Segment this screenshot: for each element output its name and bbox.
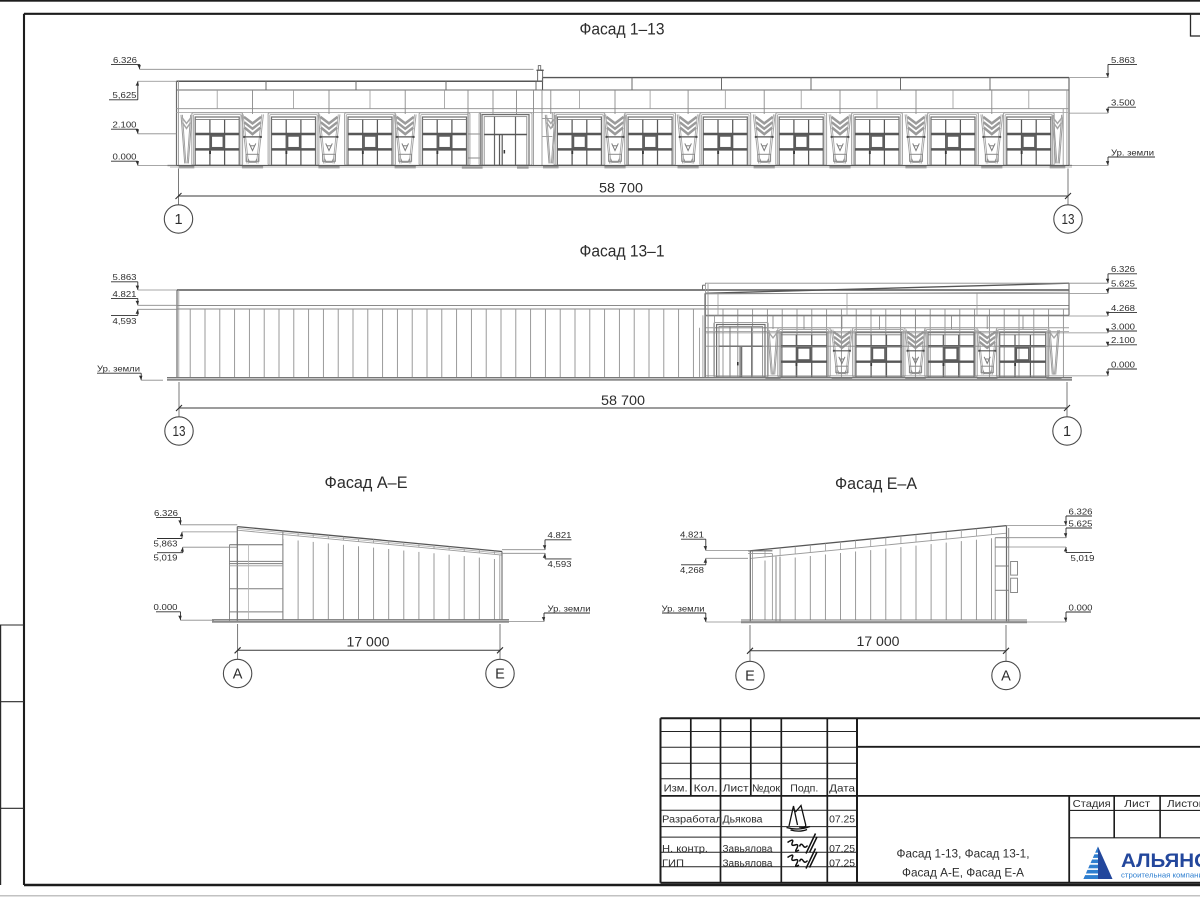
svg-text:Разработал: Разработал	[662, 814, 722, 825]
svg-text:13: 13	[1062, 212, 1075, 228]
svg-text:13: 13	[173, 424, 186, 440]
svg-text:2.100: 2.100	[1111, 335, 1135, 345]
svg-text:Лист: Лист	[1124, 799, 1150, 810]
svg-text:Фасад А–Е: Фасад А–Е	[325, 473, 408, 492]
svg-text:4.821: 4.821	[113, 289, 137, 299]
svg-text:58 700: 58 700	[599, 181, 643, 196]
svg-text:4,593: 4,593	[548, 559, 572, 569]
svg-text:5,863: 5,863	[154, 538, 178, 548]
svg-text:0.000: 0.000	[113, 152, 137, 162]
svg-text:Изм.: Изм.	[664, 784, 688, 795]
svg-text:07.25: 07.25	[829, 858, 855, 869]
svg-text:Фасад Е–А: Фасад Е–А	[835, 474, 918, 493]
svg-text:4.821: 4.821	[548, 530, 572, 540]
svg-text:6.326: 6.326	[113, 55, 137, 65]
svg-text:Фасад 1–13: Фасад 1–13	[580, 20, 665, 39]
svg-text:07.25: 07.25	[829, 844, 855, 855]
svg-text:Завьялова: Завьялова	[723, 858, 774, 869]
svg-text:0.000: 0.000	[1111, 359, 1135, 369]
svg-text:строительная компания: строительная компания	[1121, 871, 1200, 880]
svg-text:5.863: 5.863	[113, 272, 137, 282]
svg-text:Фасад А-Е, Фасад Е-А: Фасад А-Е, Фасад Е-А	[902, 866, 1025, 880]
svg-text:Подп.: Подп.	[790, 784, 818, 795]
svg-text:№док: №док	[752, 784, 780, 795]
svg-text:Н. контр.: Н. контр.	[662, 844, 708, 855]
svg-text:58 700: 58 700	[601, 393, 645, 408]
svg-text:4,268: 4,268	[680, 565, 704, 575]
svg-text:5.863: 5.863	[1111, 55, 1135, 65]
svg-text:0.000: 0.000	[154, 602, 178, 612]
svg-text:5.625: 5.625	[1111, 279, 1135, 289]
svg-text:А: А	[1001, 669, 1011, 685]
svg-text:Ур. земли: Ур. земли	[1111, 147, 1154, 157]
svg-text:1: 1	[1063, 424, 1071, 440]
svg-text:Ур. земли: Ур. земли	[548, 603, 591, 613]
svg-text:1: 1	[174, 212, 182, 228]
svg-text:АЛЬЯНС: АЛЬЯНС	[1121, 851, 1200, 872]
svg-text:Дьякова: Дьякова	[723, 814, 764, 825]
svg-text:Фасад 13–1: Фасад 13–1	[580, 242, 665, 261]
svg-text:5,019: 5,019	[1071, 553, 1095, 563]
svg-text:17 000: 17 000	[857, 634, 900, 649]
svg-text:07.25: 07.25	[829, 814, 855, 825]
svg-text:Е: Е	[495, 667, 505, 683]
svg-text:3.000: 3.000	[1111, 321, 1135, 331]
svg-text:6.326: 6.326	[154, 508, 178, 518]
svg-text:5.625: 5.625	[1069, 518, 1093, 528]
svg-text:Е: Е	[745, 669, 755, 685]
svg-text:Завьялова: Завьялова	[723, 844, 774, 855]
svg-text:Фасад 1-13, Фасад 13-1,: Фасад 1-13, Фасад 13-1,	[897, 846, 1030, 860]
svg-text:2.100: 2.100	[113, 120, 137, 130]
svg-text:6.326: 6.326	[1069, 506, 1093, 516]
svg-text:5,625: 5,625	[113, 90, 137, 100]
svg-text:4.268: 4.268	[1111, 303, 1135, 313]
svg-text:6.326: 6.326	[1111, 264, 1135, 274]
svg-text:3.500: 3.500	[1111, 98, 1135, 108]
svg-text:Лист: Лист	[723, 784, 749, 795]
svg-text:А: А	[233, 667, 243, 683]
svg-text:Листов: Листов	[1167, 799, 1200, 810]
svg-text:Стадия: Стадия	[1073, 799, 1111, 810]
svg-text:Кол.: Кол.	[694, 784, 718, 795]
svg-text:4,593: 4,593	[113, 316, 137, 326]
svg-text:17 000: 17 000	[347, 635, 390, 650]
svg-text:Ур. земли: Ур. земли	[97, 364, 140, 374]
svg-text:Ур. земли: Ур. земли	[662, 603, 705, 613]
svg-text:0.000: 0.000	[1069, 602, 1093, 612]
svg-text:ГИП: ГИП	[662, 858, 684, 869]
svg-text:Дата: Дата	[829, 784, 855, 795]
svg-text:5,019: 5,019	[154, 553, 178, 563]
svg-text:4.821: 4.821	[680, 530, 704, 540]
